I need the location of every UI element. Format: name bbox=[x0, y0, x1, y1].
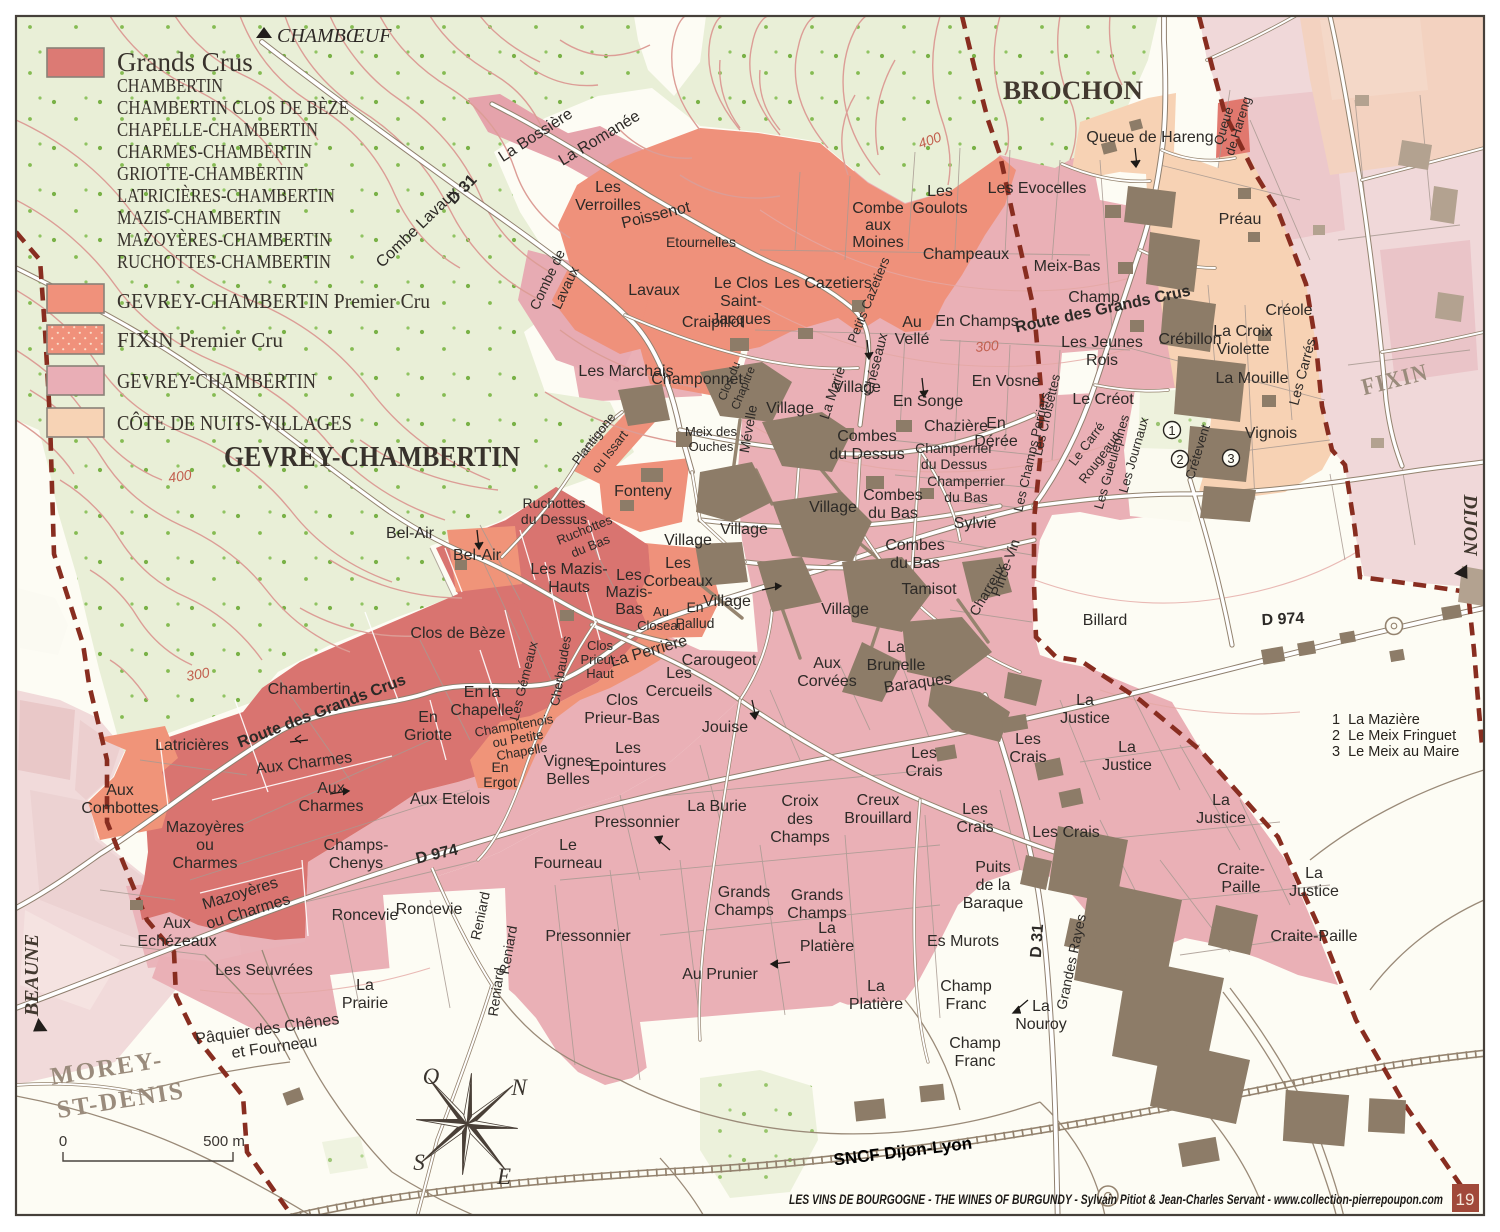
svg-text:Etournelles: Etournelles bbox=[666, 234, 736, 250]
svg-text:Ruchottes: Ruchottes bbox=[522, 495, 585, 511]
svg-text:Chapelle: Chapelle bbox=[450, 702, 513, 719]
svg-text:Chenys: Chenys bbox=[329, 855, 383, 872]
svg-text:Corbeaux: Corbeaux bbox=[643, 573, 712, 590]
svg-text:Franc: Franc bbox=[946, 996, 987, 1013]
svg-text:Village: Village bbox=[809, 499, 857, 516]
svg-text:Les: Les bbox=[962, 801, 988, 818]
svg-text:Au: Au bbox=[653, 604, 669, 619]
svg-text:Craipillot: Craipillot bbox=[682, 314, 745, 331]
svg-text:du Bas: du Bas bbox=[868, 505, 918, 522]
svg-text:Les: Les bbox=[665, 555, 691, 572]
svg-text:Griotte: Griotte bbox=[404, 727, 452, 744]
svg-text:Créole: Créole bbox=[1265, 302, 1312, 319]
svg-text:Les Evocelles: Les Evocelles bbox=[988, 180, 1087, 197]
svg-text:Epointures: Epointures bbox=[590, 758, 667, 775]
svg-text:Pallud: Pallud bbox=[676, 615, 715, 631]
svg-text:FIXIN Premier Cru: FIXIN Premier Cru bbox=[117, 328, 283, 352]
svg-text:Champs-: Champs- bbox=[324, 837, 389, 854]
svg-text:Justice: Justice bbox=[1289, 883, 1339, 900]
svg-text:aux: aux bbox=[865, 217, 891, 234]
svg-text:O: O bbox=[423, 1064, 440, 1089]
svg-text:Prairie: Prairie bbox=[342, 995, 388, 1012]
svg-text:Carougeot: Carougeot bbox=[682, 652, 757, 669]
svg-text:Justice: Justice bbox=[1060, 710, 1110, 727]
svg-text:Crais: Crais bbox=[956, 819, 993, 836]
svg-text:Le Clos: Le Clos bbox=[714, 275, 768, 292]
svg-text:Charmes: Charmes bbox=[299, 798, 364, 815]
svg-text:Mazoyères: Mazoyères bbox=[166, 819, 244, 836]
svg-text:Champ: Champ bbox=[949, 1035, 1001, 1052]
svg-text:0: 0 bbox=[59, 1133, 67, 1150]
svg-text:La: La bbox=[887, 639, 905, 656]
svg-text:Les: Les bbox=[927, 183, 953, 200]
svg-text:Belles: Belles bbox=[546, 771, 590, 788]
svg-text:Combes: Combes bbox=[863, 487, 923, 504]
svg-text:En Vosne: En Vosne bbox=[972, 373, 1041, 390]
svg-text:Sylvie: Sylvie bbox=[954, 515, 997, 532]
svg-text:Aux: Aux bbox=[163, 915, 191, 932]
svg-text:Vignois: Vignois bbox=[1245, 425, 1297, 442]
svg-text:Lavaux: Lavaux bbox=[628, 282, 680, 299]
svg-text:Combes: Combes bbox=[885, 537, 945, 554]
svg-text:Justice: Justice bbox=[1196, 810, 1246, 827]
svg-text:Les: Les bbox=[911, 745, 937, 762]
svg-text:du Dessus: du Dessus bbox=[921, 456, 987, 472]
svg-text:1: 1 bbox=[1168, 423, 1175, 438]
svg-text:du Bas: du Bas bbox=[944, 489, 988, 505]
svg-text:LATRICIÈRES-CHAMBERTIN: LATRICIÈRES-CHAMBERTIN bbox=[117, 185, 335, 207]
svg-text:En la: En la bbox=[464, 684, 501, 701]
svg-text:Echézeaux: Echézeaux bbox=[137, 933, 216, 950]
svg-text:Craite-Paille: Craite-Paille bbox=[1270, 928, 1357, 945]
svg-text:Craite-: Craite- bbox=[1217, 861, 1265, 878]
svg-text:Clos de Bèze: Clos de Bèze bbox=[410, 625, 505, 642]
svg-text:D 974: D 974 bbox=[1261, 610, 1305, 629]
svg-text:Brunelle: Brunelle bbox=[867, 657, 926, 674]
svg-text:Tamisot: Tamisot bbox=[901, 581, 957, 598]
svg-text:Combottes: Combottes bbox=[81, 800, 158, 817]
svg-text:Meix des: Meix des bbox=[685, 424, 738, 439]
svg-text:Combes: Combes bbox=[837, 428, 897, 445]
svg-text:GEVREY-CHAMBERTIN Premier Cru: GEVREY-CHAMBERTIN Premier Cru bbox=[117, 289, 430, 313]
svg-text:du Dessus: du Dessus bbox=[829, 446, 905, 463]
svg-text:Aux Etelois: Aux Etelois bbox=[410, 791, 490, 808]
svg-text:Les: Les bbox=[1015, 731, 1041, 748]
svg-text:Ouches: Ouches bbox=[689, 439, 734, 454]
svg-text:Vellé: Vellé bbox=[895, 331, 930, 348]
svg-text:Grands: Grands bbox=[718, 884, 770, 901]
svg-text:Cercueils: Cercueils bbox=[646, 683, 713, 700]
svg-text:ou: ou bbox=[196, 837, 214, 854]
svg-text:Rois: Rois bbox=[1086, 352, 1118, 369]
svg-text:3 Le Meix au Maire: 3 Le Meix au Maire bbox=[1332, 744, 1459, 760]
svg-text:CHAMBERTIN CLOS DE BÈZE: CHAMBERTIN CLOS DE BÈZE bbox=[117, 97, 349, 119]
svg-text:RUCHOTTES-CHAMBERTIN: RUCHOTTES-CHAMBERTIN bbox=[117, 252, 331, 273]
svg-text:1 La Mazière: 1 La Mazière bbox=[1332, 712, 1420, 728]
svg-text:LES VINS DE BOURGOGNE - THE WI: LES VINS DE BOURGOGNE - THE WINES OF BUR… bbox=[789, 1192, 1443, 1207]
svg-text:MAZIS-CHAMBERTIN: MAZIS-CHAMBERTIN bbox=[117, 208, 281, 229]
svg-text:Combe: Combe bbox=[852, 200, 904, 217]
svg-text:Champs: Champs bbox=[770, 829, 830, 846]
svg-text:Billard: Billard bbox=[1083, 612, 1127, 629]
svg-text:En Champs: En Champs bbox=[935, 313, 1019, 330]
svg-text:Champerrier: Champerrier bbox=[915, 440, 993, 456]
svg-text:N: N bbox=[510, 1075, 528, 1100]
svg-text:E: E bbox=[496, 1164, 511, 1189]
svg-text:Creux: Creux bbox=[857, 792, 900, 809]
svg-text:Le Créot: Le Créot bbox=[1072, 391, 1134, 408]
svg-text:Roncevie: Roncevie bbox=[396, 901, 463, 918]
svg-text:2 Le Meix Fringuet: 2 Le Meix Fringuet bbox=[1332, 728, 1456, 744]
svg-text:Justice: Justice bbox=[1102, 757, 1152, 774]
svg-text:500 m: 500 m bbox=[203, 1133, 245, 1150]
svg-text:Hauts: Hauts bbox=[548, 579, 590, 596]
svg-text:Aux: Aux bbox=[106, 782, 134, 799]
svg-text:Vignes: Vignes bbox=[544, 753, 593, 770]
svg-text:Ergot: Ergot bbox=[483, 774, 517, 790]
svg-text:300: 300 bbox=[975, 337, 1000, 355]
svg-text:Crais: Crais bbox=[1009, 749, 1046, 766]
svg-text:Paille: Paille bbox=[1221, 879, 1260, 896]
svg-text:Préau: Préau bbox=[1219, 211, 1262, 228]
svg-text:Les Jeunes: Les Jeunes bbox=[1061, 334, 1143, 351]
svg-text:Champerrier: Champerrier bbox=[927, 473, 1005, 489]
svg-text:du Bas: du Bas bbox=[890, 555, 940, 572]
svg-text:GEVREY-CHAMBERTIN: GEVREY-CHAMBERTIN bbox=[117, 369, 316, 393]
svg-text:Aux: Aux bbox=[813, 655, 841, 672]
svg-text:Champs: Champs bbox=[714, 902, 774, 919]
svg-text:Village: Village bbox=[664, 532, 712, 549]
svg-text:Saint-: Saint- bbox=[720, 293, 762, 310]
svg-text:Les: Les bbox=[595, 179, 621, 196]
svg-text:La: La bbox=[1032, 998, 1050, 1015]
svg-text:En: En bbox=[686, 599, 703, 615]
svg-text:En: En bbox=[491, 759, 508, 775]
svg-text:BEAUNE: BEAUNE bbox=[21, 934, 43, 1017]
svg-text:Violette: Violette bbox=[1216, 341, 1269, 358]
svg-text:Village: Village bbox=[720, 521, 768, 538]
svg-text:Goulots: Goulots bbox=[912, 200, 967, 217]
svg-text:Clos: Clos bbox=[587, 638, 614, 653]
svg-text:Roncevie: Roncevie bbox=[332, 907, 399, 924]
svg-text:Pressonnier: Pressonnier bbox=[594, 814, 680, 831]
svg-text:Champs: Champs bbox=[787, 905, 847, 922]
svg-text:CHARMES-CHAMBERTIN: CHARMES-CHAMBERTIN bbox=[117, 142, 312, 163]
svg-text:Franc: Franc bbox=[955, 1053, 996, 1070]
svg-text:Platière: Platière bbox=[800, 938, 854, 955]
svg-text:D 31: D 31 bbox=[1028, 923, 1047, 958]
svg-text:Les Crais: Les Crais bbox=[1032, 824, 1100, 841]
svg-text:La Burie: La Burie bbox=[687, 798, 747, 815]
svg-text:Brouillard: Brouillard bbox=[844, 810, 912, 827]
svg-text:Crais: Crais bbox=[905, 763, 942, 780]
svg-text:Les Mazis-: Les Mazis- bbox=[530, 561, 607, 578]
svg-text:Verroilles: Verroilles bbox=[575, 197, 641, 214]
svg-text:Les Seuvrées: Les Seuvrées bbox=[215, 962, 313, 979]
svg-text:La: La bbox=[1212, 792, 1230, 809]
svg-text:Au Prunier: Au Prunier bbox=[682, 966, 758, 983]
svg-text:Prieur-Bas: Prieur-Bas bbox=[584, 710, 660, 727]
svg-text:La: La bbox=[1076, 692, 1094, 709]
svg-text:Croix: Croix bbox=[781, 793, 818, 810]
svg-text:Le: Le bbox=[559, 837, 577, 854]
svg-text:DIJON: DIJON bbox=[1459, 493, 1481, 557]
svg-text:Platière: Platière bbox=[849, 996, 903, 1013]
svg-text:Bel-Air: Bel-Air bbox=[386, 525, 435, 542]
svg-text:19: 19 bbox=[1456, 1190, 1475, 1209]
svg-text:Village: Village bbox=[766, 400, 814, 417]
svg-text:Corvées: Corvées bbox=[797, 673, 857, 690]
svg-text:des: des bbox=[787, 811, 813, 828]
svg-text:La: La bbox=[867, 978, 885, 995]
svg-text:GEVREY-CHAMBERTIN: GEVREY-CHAMBERTIN bbox=[224, 441, 520, 473]
svg-text:BROCHON: BROCHON bbox=[1003, 76, 1143, 105]
svg-text:Fourneau: Fourneau bbox=[534, 855, 603, 872]
svg-text:Bel-Air: Bel-Air bbox=[453, 547, 502, 564]
svg-text:La: La bbox=[1305, 865, 1323, 882]
svg-text:Grands: Grands bbox=[791, 887, 843, 904]
svg-text:CÔTE DE NUITS-VILLAGES: CÔTE DE NUITS-VILLAGES bbox=[117, 411, 352, 435]
svg-text:Les: Les bbox=[615, 740, 641, 757]
svg-text:En: En bbox=[986, 415, 1006, 432]
svg-text:3: 3 bbox=[1227, 451, 1234, 466]
svg-text:2: 2 bbox=[1176, 452, 1183, 467]
svg-text:400: 400 bbox=[167, 466, 193, 485]
svg-text:de la: de la bbox=[976, 877, 1011, 894]
svg-text:Charmes: Charmes bbox=[173, 855, 238, 872]
svg-text:Au: Au bbox=[902, 314, 922, 331]
svg-text:Crébillon: Crébillon bbox=[1158, 331, 1221, 348]
svg-text:Baraque: Baraque bbox=[963, 895, 1024, 912]
svg-text:CHAPELLE-CHAMBERTIN: CHAPELLE-CHAMBERTIN bbox=[117, 120, 318, 141]
svg-text:GRIOTTE-CHAMBERTIN: GRIOTTE-CHAMBERTIN bbox=[117, 164, 304, 185]
svg-text:La: La bbox=[356, 977, 374, 994]
svg-text:Champ: Champ bbox=[940, 978, 992, 995]
svg-text:Latricières: Latricières bbox=[155, 737, 229, 754]
svg-text:La Croix: La Croix bbox=[1213, 323, 1273, 340]
svg-text:Grands Crus: Grands Crus bbox=[117, 47, 253, 77]
svg-text:CHAMBŒUF: CHAMBŒUF bbox=[277, 25, 392, 47]
svg-text:Queue de Hareng: Queue de Hareng bbox=[1086, 129, 1213, 146]
svg-text:Bas: Bas bbox=[615, 601, 643, 618]
svg-text:Village: Village bbox=[821, 601, 869, 618]
svg-text:Pressonnier: Pressonnier bbox=[545, 928, 631, 945]
svg-text:Les: Les bbox=[616, 567, 642, 584]
svg-text:Champeaux: Champeaux bbox=[923, 246, 1009, 263]
svg-text:Meix-Bas: Meix-Bas bbox=[1034, 258, 1101, 275]
svg-text:Fonteny: Fonteny bbox=[614, 483, 672, 500]
svg-text:Village: Village bbox=[703, 593, 751, 610]
svg-text:S: S bbox=[413, 1150, 425, 1175]
svg-text:Haut: Haut bbox=[586, 666, 614, 681]
svg-text:Village: Village bbox=[833, 379, 881, 396]
svg-text:CHAMBERTIN: CHAMBERTIN bbox=[117, 76, 223, 97]
svg-text:La Mouille: La Mouille bbox=[1216, 370, 1289, 387]
svg-text:Nouroy: Nouroy bbox=[1015, 1016, 1067, 1033]
svg-text:En Songe: En Songe bbox=[893, 393, 963, 410]
svg-text:En: En bbox=[418, 709, 438, 726]
svg-text:La: La bbox=[818, 920, 836, 937]
svg-text:Jouise: Jouise bbox=[702, 719, 748, 736]
svg-text:Puits: Puits bbox=[975, 859, 1011, 876]
svg-text:MAZOYÈRES-CHAMBERTIN: MAZOYÈRES-CHAMBERTIN bbox=[117, 229, 331, 251]
svg-text:Es Murots: Es Murots bbox=[927, 933, 999, 950]
svg-text:Les Cazetiers: Les Cazetiers bbox=[774, 275, 872, 292]
svg-text:Moines: Moines bbox=[852, 234, 904, 251]
svg-text:La: La bbox=[1118, 739, 1136, 756]
svg-text:Clos: Clos bbox=[606, 692, 638, 709]
